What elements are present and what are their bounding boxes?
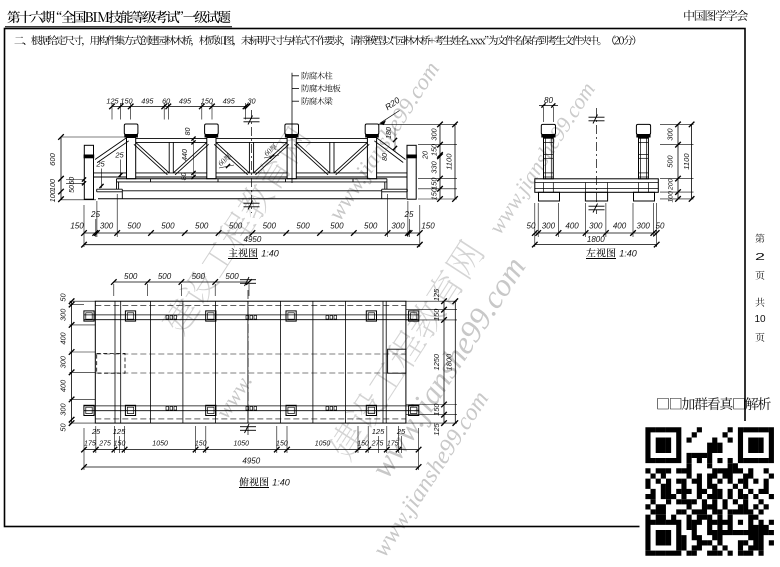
- svg-text:125: 125: [113, 427, 126, 436]
- svg-text:100: 100: [668, 191, 675, 203]
- svg-text:175: 175: [387, 441, 399, 448]
- svg-text:300: 300: [391, 222, 405, 231]
- svg-text:25: 25: [90, 210, 100, 219]
- svg-text:500: 500: [161, 222, 175, 231]
- svg-text:1050: 1050: [315, 441, 331, 448]
- svg-text:150: 150: [276, 441, 288, 448]
- svg-text:1050: 1050: [152, 441, 168, 448]
- svg-text:300: 300: [666, 127, 675, 140]
- svg-text:10: 10: [754, 314, 766, 325]
- svg-text:125: 125: [372, 427, 385, 436]
- svg-text:25: 25: [114, 151, 124, 160]
- svg-text:30: 30: [247, 96, 255, 105]
- svg-text:125: 125: [432, 288, 441, 301]
- svg-text:180: 180: [386, 127, 393, 139]
- svg-text:150: 150: [120, 96, 132, 105]
- svg-text:150: 150: [432, 404, 441, 416]
- svg-text:500: 500: [330, 222, 344, 231]
- svg-text:400: 400: [59, 331, 68, 344]
- svg-text:4950: 4950: [242, 457, 260, 466]
- svg-text:275: 275: [371, 441, 384, 448]
- svg-text:50: 50: [69, 185, 76, 193]
- svg-text:80: 80: [181, 173, 188, 181]
- svg-text:1:40: 1:40: [272, 478, 290, 488]
- svg-text:500: 500: [296, 222, 310, 231]
- svg-text:300: 300: [100, 222, 114, 231]
- svg-text:500: 500: [124, 272, 138, 281]
- svg-text:495: 495: [223, 96, 236, 105]
- svg-text:1:40: 1:40: [619, 249, 637, 259]
- svg-text:1250: 1250: [432, 354, 441, 370]
- svg-text:100: 100: [48, 179, 57, 191]
- svg-text:1:40: 1:40: [261, 249, 279, 259]
- svg-text:500: 500: [195, 222, 209, 231]
- svg-text:50: 50: [59, 293, 68, 302]
- svg-text:300: 300: [542, 222, 556, 231]
- svg-text:275: 275: [98, 441, 111, 448]
- svg-text:150: 150: [70, 222, 84, 231]
- svg-text:1800: 1800: [587, 235, 605, 244]
- svg-text:80: 80: [185, 128, 192, 136]
- svg-text:300: 300: [59, 355, 68, 368]
- svg-text:495: 495: [141, 96, 154, 105]
- svg-text:500: 500: [225, 272, 239, 281]
- svg-text:80: 80: [544, 96, 553, 105]
- svg-text:2: 2: [755, 252, 766, 263]
- svg-text:100: 100: [48, 190, 57, 202]
- svg-text:500: 500: [229, 222, 243, 231]
- svg-text:440: 440: [182, 149, 189, 161]
- svg-text:500: 500: [263, 222, 277, 231]
- svg-text:1100: 1100: [445, 153, 454, 170]
- svg-text:300: 300: [59, 308, 68, 321]
- svg-text:150: 150: [201, 96, 213, 105]
- svg-text:300: 300: [589, 222, 603, 231]
- svg-text:60: 60: [162, 96, 170, 105]
- svg-text:150: 150: [421, 222, 435, 231]
- svg-text:125: 125: [432, 422, 441, 435]
- svg-text:20: 20: [421, 150, 430, 160]
- svg-text:500: 500: [666, 155, 675, 168]
- svg-text:200: 200: [668, 178, 675, 191]
- svg-text:150: 150: [114, 441, 126, 448]
- svg-text:150: 150: [357, 441, 369, 448]
- svg-text:600: 600: [48, 152, 57, 165]
- svg-text:175: 175: [84, 441, 96, 448]
- svg-text:500: 500: [364, 222, 378, 231]
- svg-text:25: 25: [404, 210, 414, 219]
- svg-text:80: 80: [382, 153, 389, 161]
- svg-text:150: 150: [195, 441, 207, 448]
- svg-text:495: 495: [179, 96, 192, 105]
- svg-text:1100: 1100: [682, 153, 691, 170]
- svg-text:25: 25: [396, 427, 406, 436]
- svg-text:400: 400: [613, 222, 627, 231]
- svg-text:4950: 4950: [244, 235, 262, 244]
- svg-text:1800: 1800: [444, 353, 453, 371]
- svg-text:400: 400: [565, 222, 579, 231]
- svg-text:150: 150: [432, 309, 441, 321]
- svg-text:300: 300: [637, 222, 651, 231]
- svg-text:500: 500: [192, 272, 206, 281]
- svg-text:500: 500: [158, 272, 172, 281]
- svg-text:25: 25: [95, 160, 105, 169]
- svg-text:300: 300: [59, 403, 68, 416]
- svg-text:150: 150: [430, 187, 439, 200]
- svg-text:500: 500: [127, 222, 141, 231]
- svg-text:400: 400: [59, 379, 68, 392]
- svg-text:330: 330: [430, 160, 439, 173]
- svg-text:50: 50: [59, 423, 68, 432]
- svg-text:125: 125: [106, 96, 119, 105]
- svg-text:300: 300: [430, 127, 439, 140]
- svg-text:1050: 1050: [234, 441, 250, 448]
